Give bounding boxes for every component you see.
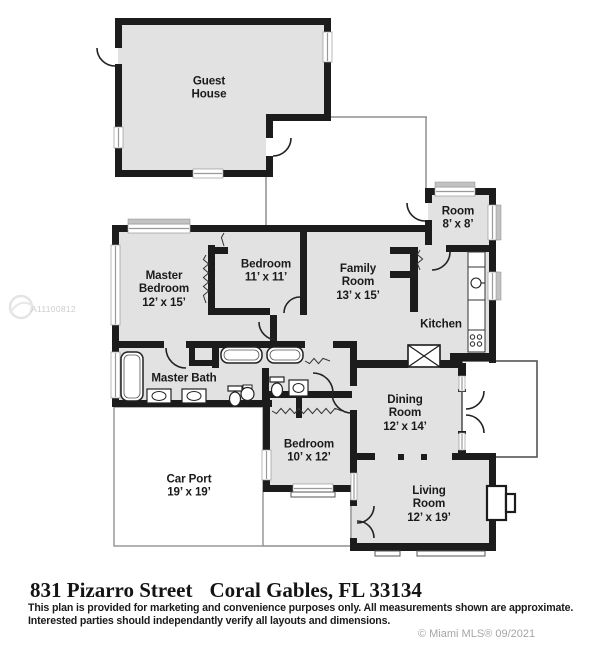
wall	[266, 114, 273, 138]
wall	[333, 485, 352, 492]
wall	[350, 500, 357, 506]
door-arc	[273, 138, 291, 156]
wall	[352, 543, 496, 551]
wall	[115, 18, 122, 48]
window-sill	[435, 182, 475, 187]
window-sill	[496, 272, 501, 300]
wall	[350, 410, 357, 457]
bathtub-icon	[267, 347, 303, 363]
wall	[324, 18, 331, 34]
wall	[410, 247, 418, 312]
wall	[458, 363, 466, 376]
wall	[421, 454, 427, 460]
window-sill	[291, 492, 335, 497]
room-label-guest-house: GuestHouse	[192, 75, 227, 102]
utility-closet-icon	[408, 345, 440, 367]
disclaimer-text: This plan is provided for marketing and …	[28, 602, 588, 628]
wall	[189, 348, 195, 362]
pedestal-sink-icon	[241, 385, 254, 401]
window-sill	[496, 205, 501, 240]
wall	[208, 247, 228, 254]
wall	[333, 341, 352, 348]
wall	[350, 341, 357, 386]
wall	[324, 62, 331, 121]
wall	[263, 485, 293, 492]
wall	[212, 341, 219, 368]
room-label-car-port: Car Port19’ x 19’	[167, 473, 212, 500]
floor-plan-page: A11100812 GuestHouse MasterBedroom12’ x …	[0, 0, 612, 647]
room-label-room-8x8: Room8’ x 8’	[442, 205, 474, 232]
wall	[352, 453, 375, 460]
mls-number-watermark: A11100812	[31, 304, 76, 314]
wall	[450, 353, 496, 361]
room-label-dining-room: DiningRoom12’ x 14’	[383, 393, 427, 433]
mls-credit-watermark: © Miami MLS® 09/2021	[418, 628, 535, 640]
wall	[425, 220, 432, 245]
fireplace-icon	[487, 486, 515, 520]
sink-icon	[289, 380, 308, 396]
window-sill	[375, 551, 400, 556]
wall	[489, 188, 496, 205]
room-label-master-bedroom: MasterBedroom12’ x 15’	[139, 269, 189, 309]
room-label-kitchen: Kitchen	[420, 317, 462, 330]
wall	[489, 453, 496, 487]
wall	[112, 341, 164, 348]
floor-plan-drawing	[0, 0, 612, 647]
bathtub-icon	[221, 347, 262, 363]
window-sill	[417, 551, 485, 556]
door-arc	[97, 48, 115, 66]
wall	[112, 225, 128, 232]
room-label-master-bath: Master Bath	[151, 371, 216, 384]
door-arc	[407, 203, 425, 221]
wall	[446, 245, 489, 252]
wall	[115, 18, 331, 25]
wall	[190, 225, 432, 232]
wall	[398, 454, 404, 460]
room-label-family-room: FamilyRoom13’ x 15’	[336, 262, 380, 302]
room-label-bedroom-11: Bedroom11’ x 11’	[241, 258, 291, 285]
room-label-bedroom-10: Bedroom10’ x 12’	[284, 438, 334, 465]
wall	[300, 232, 307, 315]
wall	[266, 114, 331, 121]
wall	[270, 315, 277, 341]
wall	[489, 240, 496, 272]
address-title: 831 Pizarro StreetCoral Gables, FL 33134	[30, 577, 422, 603]
wall	[425, 188, 435, 195]
wall	[115, 170, 193, 177]
toilet-icon	[270, 377, 284, 397]
wall	[208, 308, 270, 315]
wall	[189, 360, 215, 366]
wall	[208, 245, 215, 315]
porch-outline	[462, 361, 537, 457]
wall	[263, 398, 270, 450]
wall	[352, 360, 408, 368]
window-sill	[128, 219, 190, 224]
wall	[115, 64, 122, 127]
bathtub-icon	[121, 352, 143, 401]
wall	[425, 195, 432, 203]
toilet-icon	[228, 386, 242, 406]
wall	[223, 170, 273, 177]
room-label-living-room: LivingRoom12’ x 19’	[407, 484, 451, 524]
wall	[112, 232, 119, 245]
